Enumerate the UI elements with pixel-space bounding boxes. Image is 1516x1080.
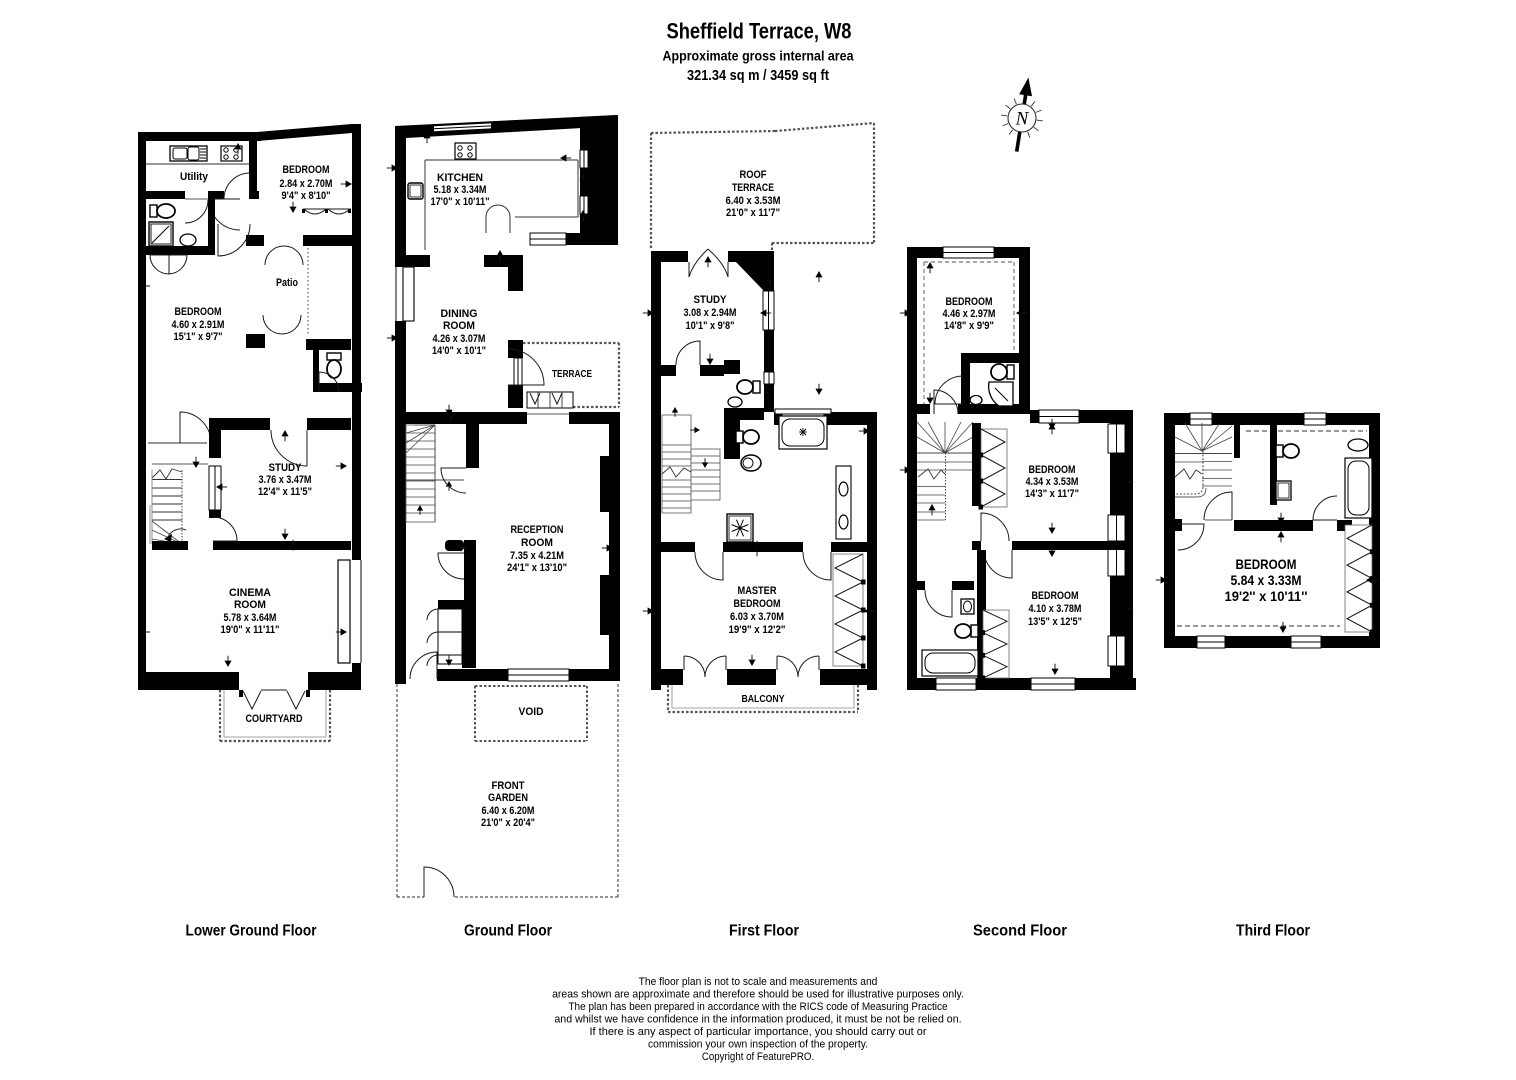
svg-text:BEDROOM: BEDROOM xyxy=(283,164,330,176)
svg-text:areas shown are approximate an: areas shown are approximate and therefor… xyxy=(552,989,964,1001)
svg-text:Utility: Utility xyxy=(180,171,209,183)
svg-text:First Floor: First Floor xyxy=(729,923,799,940)
svg-text:MASTER: MASTER xyxy=(738,585,777,597)
svg-text:DINING: DINING xyxy=(441,308,478,320)
svg-text:6.40 x 3.53M: 6.40 x 3.53M xyxy=(726,195,781,207)
svg-text:STUDY: STUDY xyxy=(694,294,728,306)
svg-text:CINEMA: CINEMA xyxy=(229,587,271,599)
svg-text:4.34 x 3.53M: 4.34 x 3.53M xyxy=(1026,476,1079,488)
svg-text:N: N xyxy=(1015,109,1030,130)
svg-text:BEDROOM: BEDROOM xyxy=(1029,464,1076,476)
svg-text:24'1" x 13'10": 24'1" x 13'10" xyxy=(507,562,567,574)
svg-text:Copyright of FeaturePRO.: Copyright of FeaturePRO. xyxy=(702,1051,814,1063)
svg-text:and whilst we have confidence: and whilst we have confidence in the inf… xyxy=(554,1014,961,1026)
svg-text:ROOM: ROOM xyxy=(443,320,475,332)
svg-text:21'0" x 11'7": 21'0" x 11'7" xyxy=(726,207,780,219)
svg-text:ROOM: ROOM xyxy=(521,537,553,549)
svg-text:2.84 x 2.70M: 2.84 x 2.70M xyxy=(280,178,333,190)
svg-text:ROOF: ROOF xyxy=(740,169,767,181)
svg-text:Third Floor: Third Floor xyxy=(1236,923,1310,940)
svg-text:The plan has been prepared in: The plan has been prepared in accordance… xyxy=(568,1001,947,1013)
svg-text:6.03 x 3.70M: 6.03 x 3.70M xyxy=(730,611,784,623)
svg-text:BEDROOM: BEDROOM xyxy=(946,296,993,308)
svg-text:3.76 x 3.47M: 3.76 x 3.47M xyxy=(259,474,312,486)
svg-text:BEDROOM: BEDROOM xyxy=(734,598,781,610)
svg-text:Second Floor: Second Floor xyxy=(973,923,1067,940)
svg-text:The floor plan is not to scale: The floor plan is not to scale and measu… xyxy=(639,976,878,988)
svg-text:19'2'' x 10'11'': 19'2'' x 10'11'' xyxy=(1225,588,1308,604)
svg-text:Lower Ground Floor: Lower Ground Floor xyxy=(186,923,317,940)
svg-text:TERRACE: TERRACE xyxy=(732,182,774,194)
svg-text:12'4" x 11'5": 12'4" x 11'5" xyxy=(258,486,312,498)
svg-text:Patio: Patio xyxy=(276,277,298,289)
svg-text:COURTYARD: COURTYARD xyxy=(246,713,303,725)
svg-text:STUDY: STUDY xyxy=(269,462,303,474)
svg-text:14'8" x 9'9": 14'8" x 9'9" xyxy=(944,320,994,332)
svg-text:15'1" x 9'7": 15'1" x 9'7" xyxy=(174,331,223,343)
svg-text:4.46 x 2.97M: 4.46 x 2.97M xyxy=(943,308,996,320)
svg-text:17'0" x 10'11": 17'0" x 10'11" xyxy=(431,196,490,208)
svg-text:commission your own inspection: commission your own inspection of the pr… xyxy=(648,1039,868,1051)
svg-text:10'1" x 9'8": 10'1" x 9'8" xyxy=(686,320,735,332)
svg-text:19'0" x 11'11": 19'0" x 11'11" xyxy=(221,624,280,636)
svg-text:KITCHEN: KITCHEN xyxy=(437,172,483,184)
svg-text:19'9" x 12'2": 19'9" x 12'2" xyxy=(729,624,786,636)
svg-text:ROOM: ROOM xyxy=(234,599,266,611)
svg-text:14'0" x 10'1": 14'0" x 10'1" xyxy=(432,345,486,357)
svg-text:5.18 x 3.34M: 5.18 x 3.34M xyxy=(434,184,487,196)
svg-text:4.26 x 3.07M: 4.26 x 3.07M xyxy=(433,333,486,345)
svg-text:TERRACE: TERRACE xyxy=(552,368,592,380)
svg-text:21'0" x 20'4": 21'0" x 20'4" xyxy=(481,817,535,829)
svg-text:VOID: VOID xyxy=(519,706,544,718)
svg-text:7.35 x 4.21M: 7.35 x 4.21M xyxy=(510,550,564,562)
svg-text:321.34 sq m / 3459 sq ft: 321.34 sq m / 3459 sq ft xyxy=(687,68,829,84)
svg-text:13'5" x 12'5": 13'5" x 12'5" xyxy=(1028,616,1082,628)
svg-text:Approximate gross internal are: Approximate gross internal area xyxy=(663,49,854,64)
svg-text:BALCONY: BALCONY xyxy=(742,693,785,705)
svg-text:If there is any aspect of part: If there is any aspect of particular imp… xyxy=(590,1026,927,1038)
svg-text:6.40 x 6.20M: 6.40 x 6.20M xyxy=(482,805,535,817)
svg-text:Sheffield Terrace, W8: Sheffield Terrace, W8 xyxy=(667,19,852,44)
svg-text:5.84 x 3.33M: 5.84 x 3.33M xyxy=(1231,572,1302,588)
svg-text:BEDROOM: BEDROOM xyxy=(1236,556,1297,572)
svg-text:BEDROOM: BEDROOM xyxy=(1032,590,1079,602)
svg-text:4.10 x 3.78M: 4.10 x 3.78M xyxy=(1029,603,1082,615)
svg-text:5.78 x 3.64M: 5.78 x 3.64M xyxy=(224,612,277,624)
svg-text:Ground Floor: Ground Floor xyxy=(464,923,552,940)
svg-text:RECEPTION: RECEPTION xyxy=(511,524,564,536)
svg-text:3.08 x 2.94M: 3.08 x 2.94M xyxy=(684,307,737,319)
svg-text:FRONT: FRONT xyxy=(492,780,525,792)
svg-text:GARDEN: GARDEN xyxy=(488,792,528,804)
svg-text:4.60 x 2.91M: 4.60 x 2.91M xyxy=(172,319,225,331)
svg-text:9'4" x 8'10": 9'4" x 8'10" xyxy=(282,190,331,202)
svg-text:BEDROOM: BEDROOM xyxy=(175,306,222,318)
svg-text:14'3" x 11'7": 14'3" x 11'7" xyxy=(1025,488,1079,500)
